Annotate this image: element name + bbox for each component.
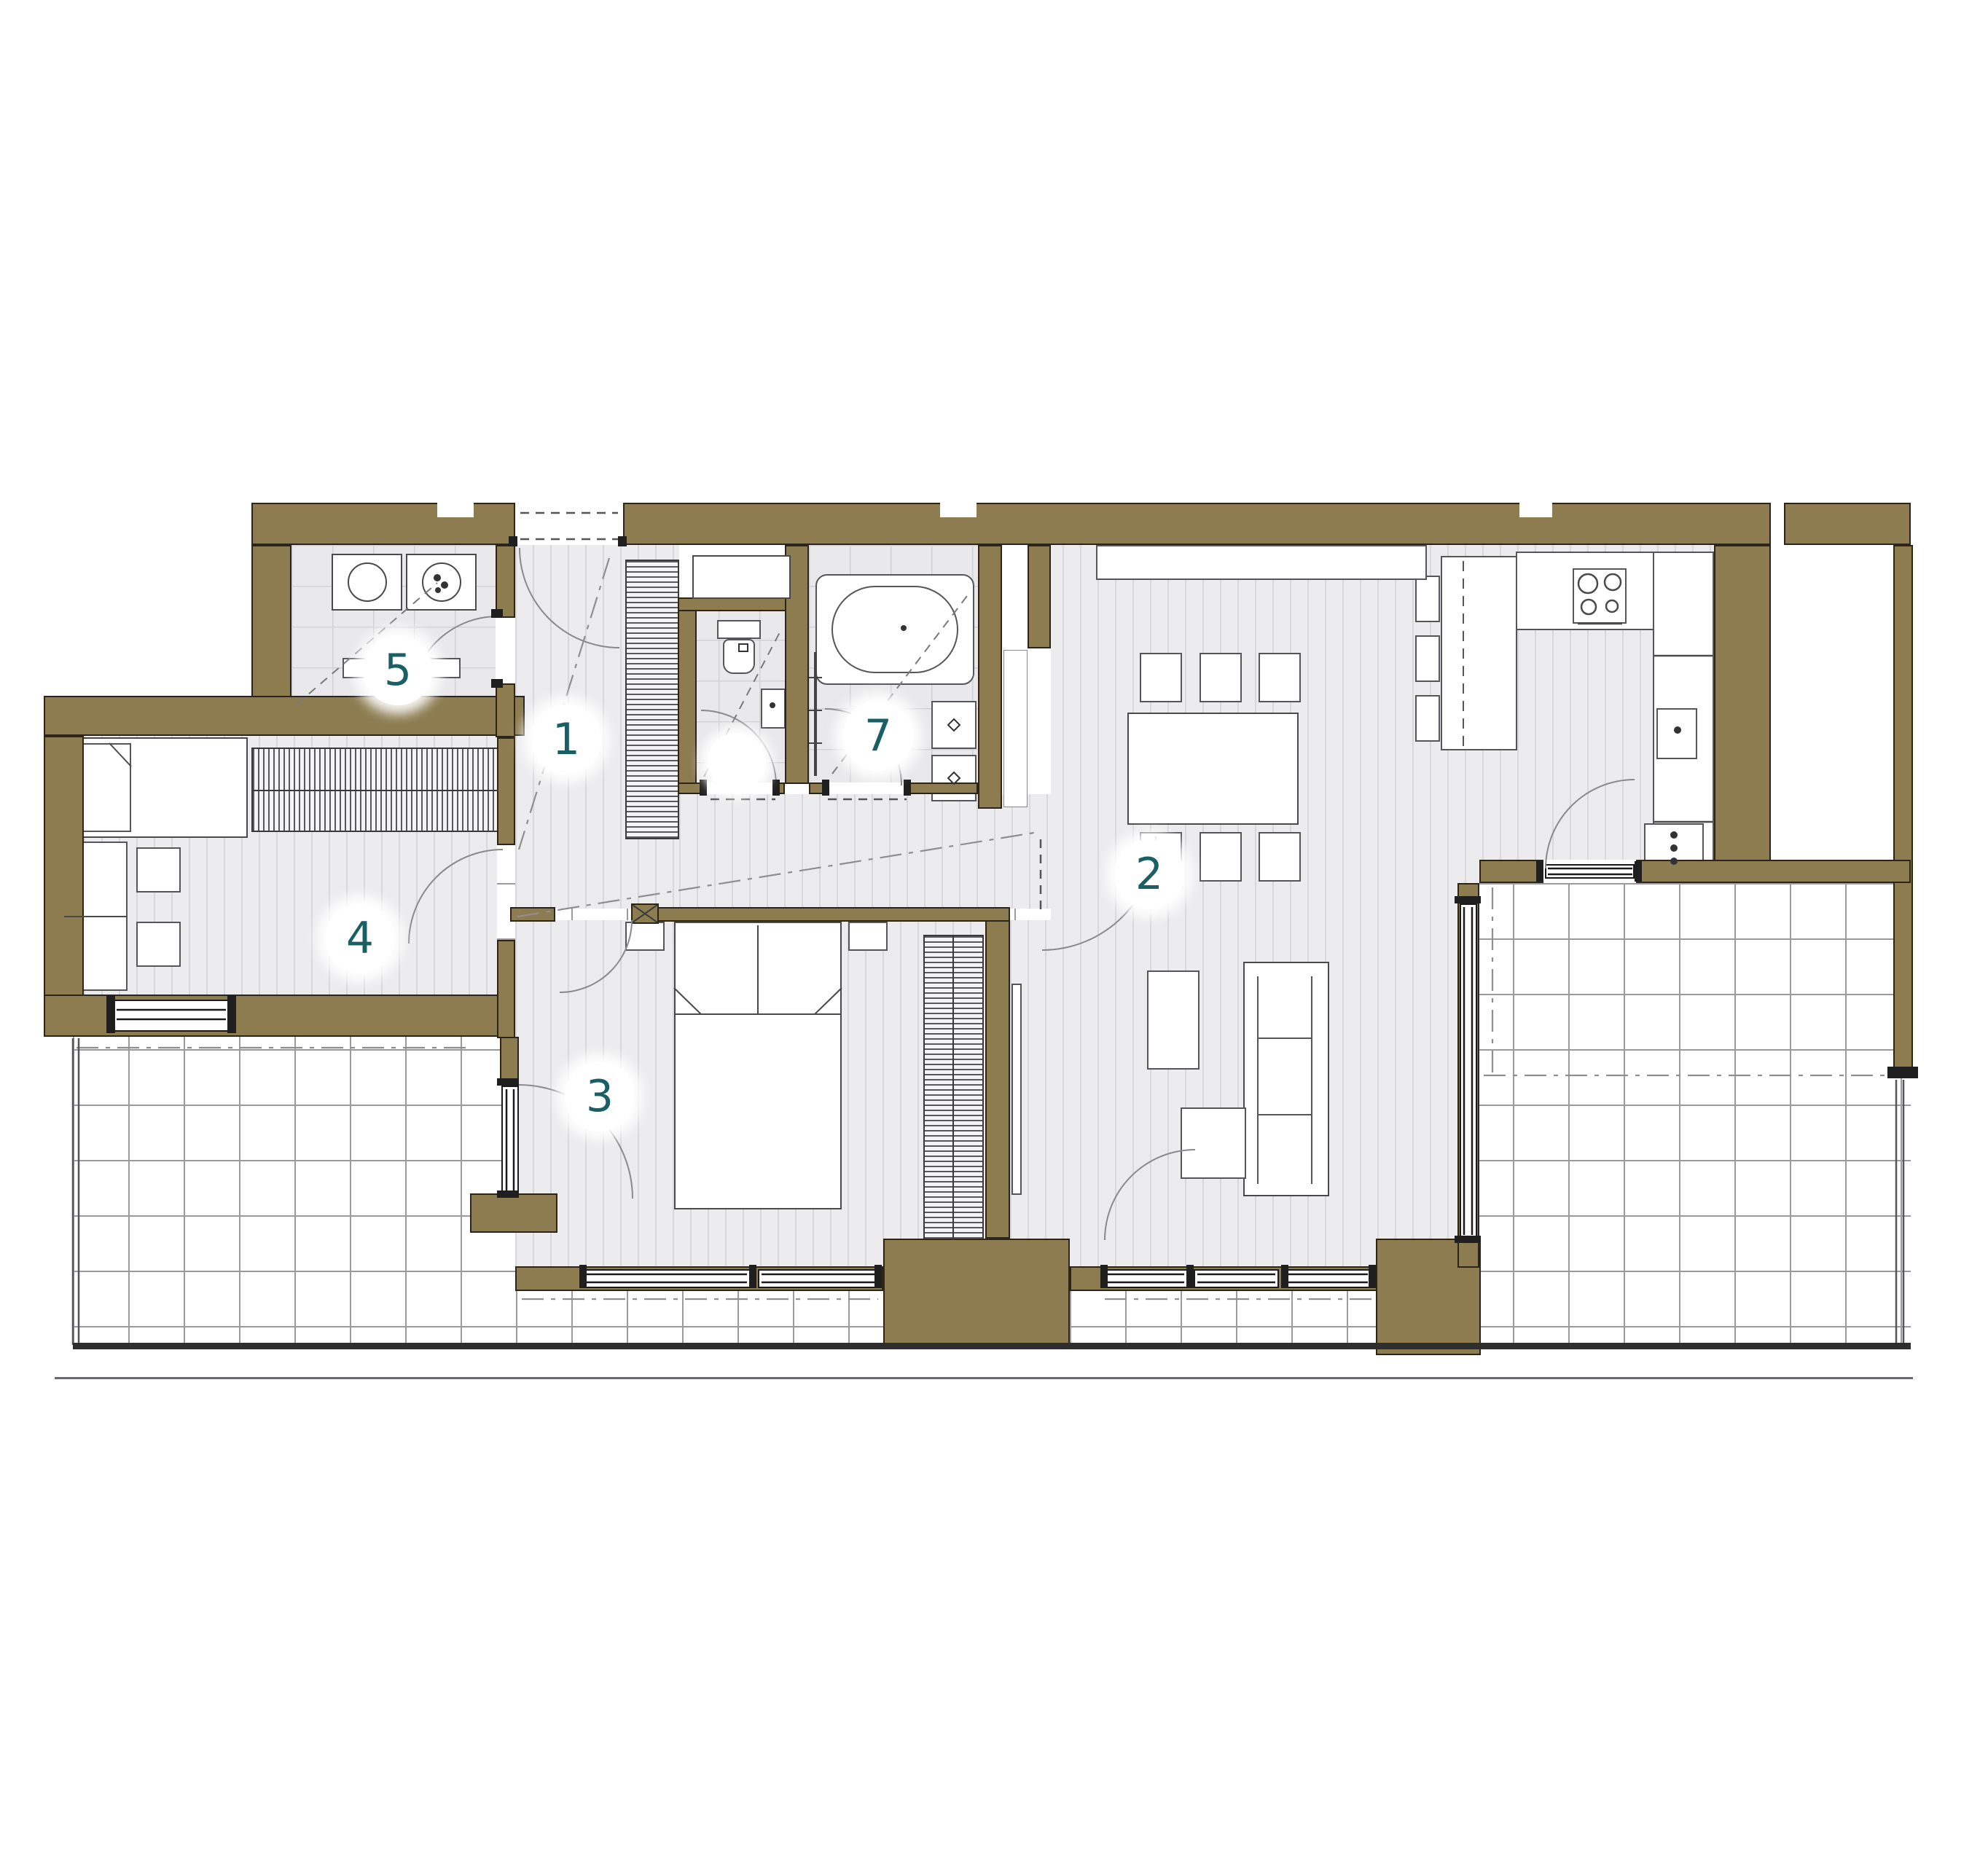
floor-plan: 1 2 3 4 5 7 [0, 0, 1988, 1871]
jamb [1100, 1265, 1108, 1288]
towel-radiator-icon [814, 652, 817, 776]
toilet-cistern-icon [717, 620, 761, 639]
terrace-door-bedroom-west [501, 1086, 519, 1195]
room-label-bathroom: 7 [843, 701, 913, 771]
washing-machine-drum-icon [348, 562, 387, 602]
dining-chair [1140, 653, 1182, 702]
wall-hall-utility-a [496, 545, 515, 618]
jamb [700, 780, 707, 796]
wall-bath-right [978, 545, 1002, 809]
dryer-drum-icon [422, 562, 461, 602]
bathtub-basin-icon [831, 586, 958, 673]
wall-corner-sw [470, 1193, 557, 1233]
stove-icon [1573, 568, 1627, 624]
dining-chair [1259, 832, 1301, 882]
room-number: 1 [552, 714, 580, 765]
toilet-bowl-icon [723, 639, 755, 674]
sofa [1243, 962, 1329, 1196]
window-living-2 [1194, 1269, 1279, 1288]
window-room4 [113, 1000, 230, 1032]
jamb [1281, 1265, 1288, 1288]
dining-chair [1200, 832, 1242, 882]
wardrobe-room4 [251, 748, 498, 832]
dining-chair [1259, 653, 1301, 702]
wall-right-outer [1893, 545, 1913, 1071]
window-living-3 [1285, 1269, 1371, 1288]
jamb [874, 1265, 882, 1288]
wall-bedroom-top-a [510, 907, 555, 922]
washbasin-2-icon [931, 755, 977, 801]
terrace-door-living [1104, 1269, 1188, 1288]
shaft-niche [1003, 650, 1028, 807]
jamb [491, 679, 503, 688]
wall-pier-south [883, 1239, 1070, 1346]
wall-room4-right-b [497, 940, 515, 1038]
jamb [1369, 1265, 1376, 1288]
jamb [618, 536, 627, 546]
wall-notch [1519, 503, 1552, 517]
wall-utility-left [251, 545, 291, 703]
nightstand-right [848, 922, 888, 951]
wall-top-left [251, 503, 515, 545]
dining-chair [1200, 653, 1242, 702]
wc-washbasin-icon [761, 689, 786, 729]
window-bedroom-1 [583, 1269, 751, 1288]
jamb [491, 609, 503, 618]
side-table [1147, 970, 1200, 1070]
wall-bedroom-living [985, 920, 1010, 1239]
wall-wc-left [678, 597, 697, 784]
jamb [1887, 1067, 1918, 1078]
wall-notch [437, 503, 474, 517]
column-xbox [631, 903, 659, 924]
room-number: 3 [586, 1071, 614, 1122]
jamb [227, 995, 236, 1033]
bar-stool-1 [1415, 576, 1440, 622]
jamb [904, 780, 911, 796]
jamb [1635, 861, 1642, 882]
wall-kitchen-bottom-b [1636, 860, 1911, 883]
sideboard [1096, 545, 1427, 580]
entry-opening [515, 503, 623, 545]
jamb [497, 1191, 519, 1198]
chair [136, 922, 181, 967]
bar-stool-3 [1415, 695, 1440, 742]
jamb [822, 780, 829, 796]
jamb [772, 780, 780, 796]
room-label-utility: 5 [363, 635, 433, 705]
room-label-bedroom: 3 [565, 1062, 635, 1131]
jamb [1536, 861, 1543, 882]
wall-bath-bottom-b [904, 782, 978, 794]
wall-left-outer [44, 736, 84, 1037]
room-label-room4: 4 [325, 903, 395, 973]
wardrobe-hallway [625, 560, 679, 839]
wall-room4-right-a [497, 737, 515, 845]
room-number: 2 [1135, 849, 1163, 900]
jamb [749, 1265, 756, 1288]
wall-top-main [623, 503, 1771, 545]
wall-pillar [1028, 545, 1051, 648]
room-label-hallway: 1 [531, 705, 601, 774]
chair [136, 847, 181, 893]
dining-table [1127, 713, 1299, 825]
jamb [106, 995, 115, 1033]
jamb [1186, 1265, 1194, 1288]
room-label-wc-blank [708, 733, 766, 791]
window-bedroom-2 [758, 1269, 878, 1288]
wall-top-right [1784, 503, 1911, 545]
bar-stool-2 [1415, 635, 1440, 682]
floor-corridor [679, 794, 1051, 909]
double-bed [674, 922, 842, 1209]
wall-kitchen-right [1714, 545, 1771, 863]
washbasin-1-icon [931, 701, 977, 749]
jamb [1455, 1236, 1481, 1243]
wc-niche-window [692, 555, 791, 599]
jamb [579, 1265, 587, 1288]
jamb [497, 1078, 519, 1086]
wall-kitchen-bottom-a [1479, 860, 1543, 883]
room-label-living: 2 [1114, 839, 1184, 909]
jamb [1455, 896, 1481, 903]
wardrobe-bedroom [923, 935, 984, 1240]
jamb [509, 536, 517, 546]
kitchen-counter-right [1653, 552, 1714, 863]
tv-panel-icon [1011, 984, 1022, 1195]
wall-bedroom-top-b [633, 907, 1010, 922]
kitchen-island [1441, 556, 1517, 750]
room-number: 7 [864, 710, 892, 761]
room-number: 4 [346, 913, 374, 964]
kitchen-sink-icon [1656, 708, 1697, 759]
wall-notch [940, 503, 977, 517]
room-number: 5 [384, 645, 412, 696]
wall-hall-utility-b [496, 683, 515, 737]
window-living-east [1460, 903, 1477, 1239]
